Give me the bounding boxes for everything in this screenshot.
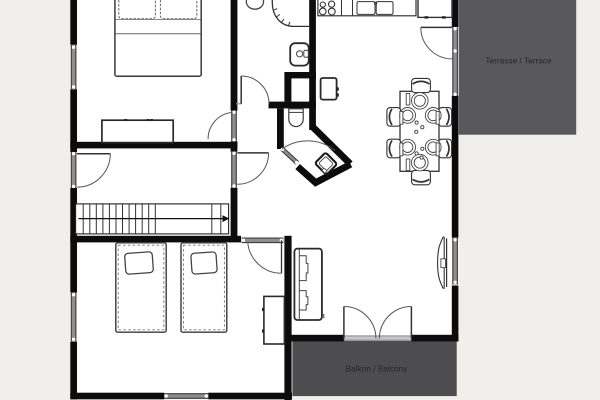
svg-text:Terrasse / Terrace: Terrasse / Terrace — [485, 55, 552, 65]
svg-text:Balkon / Balcony: Balkon / Balcony — [346, 363, 409, 373]
